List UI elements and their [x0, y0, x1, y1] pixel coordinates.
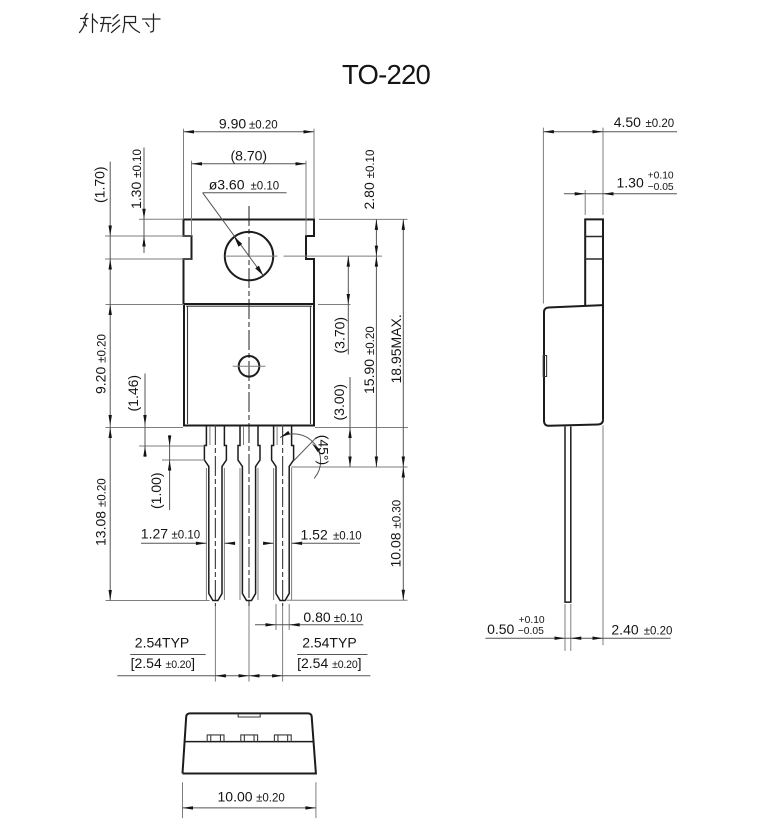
svg-text:ø3.60: ø3.60	[209, 176, 245, 192]
svg-text:(45°): (45°)	[316, 435, 332, 466]
svg-text:18.95MAX.: 18.95MAX.	[388, 314, 404, 383]
svg-text:1.30: 1.30	[617, 175, 644, 191]
svg-text:2.54TYP: 2.54TYP	[302, 635, 356, 651]
svg-text:0.80: 0.80	[303, 609, 330, 625]
svg-text:−0.05: −0.05	[518, 626, 544, 637]
svg-text:±0.10: ±0.10	[333, 531, 362, 543]
svg-text:4.50: 4.50	[614, 114, 641, 130]
svg-text:2.40: 2.40	[611, 622, 638, 638]
svg-text:10.00: 10.00	[218, 789, 253, 805]
svg-text:±0.10: ±0.10	[334, 613, 363, 625]
svg-text:−0.05: −0.05	[648, 182, 674, 193]
svg-text:TO-220: TO-220	[342, 59, 430, 90]
svg-text:9.90: 9.90	[219, 115, 246, 131]
svg-text:(3.00): (3.00)	[331, 384, 347, 421]
svg-text:±0.10: ±0.10	[251, 180, 280, 192]
svg-text:0.50: 0.50	[487, 621, 514, 637]
svg-text:(3.70): (3.70)	[331, 317, 347, 354]
svg-text:2.54TYP: 2.54TYP	[135, 635, 189, 651]
svg-text:±0.20: ±0.20	[644, 625, 673, 637]
svg-text:1.27: 1.27	[141, 525, 168, 541]
svg-text:(1.70): (1.70)	[92, 166, 108, 203]
svg-text:+0.10: +0.10	[519, 615, 545, 626]
svg-text:±0.20: ±0.20	[646, 118, 675, 130]
svg-text:1.52: 1.52	[301, 527, 328, 543]
svg-text:±0.20: ±0.20	[256, 793, 285, 805]
svg-text:±0.10: ±0.10	[172, 529, 201, 541]
svg-text:(8.70): (8.70)	[231, 148, 268, 164]
svg-text:+0.10: +0.10	[648, 171, 674, 182]
svg-text:±0.20: ±0.20	[249, 119, 278, 131]
svg-text:(1.46): (1.46)	[125, 375, 141, 412]
svg-text:(1.00): (1.00)	[148, 472, 164, 509]
